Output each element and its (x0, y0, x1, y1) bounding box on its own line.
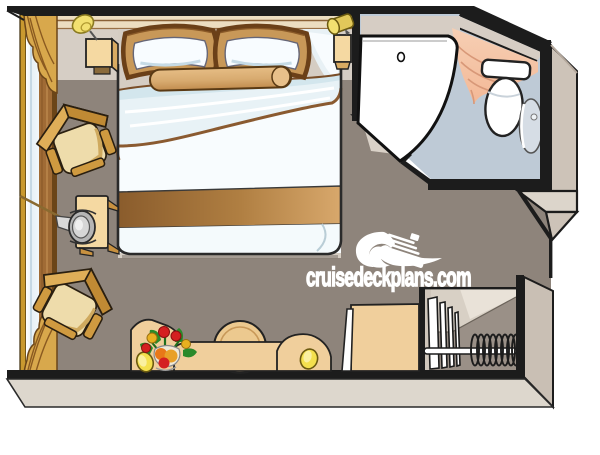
svg-text:cruisedeckplans.com: cruisedeckplans.com (306, 262, 471, 292)
